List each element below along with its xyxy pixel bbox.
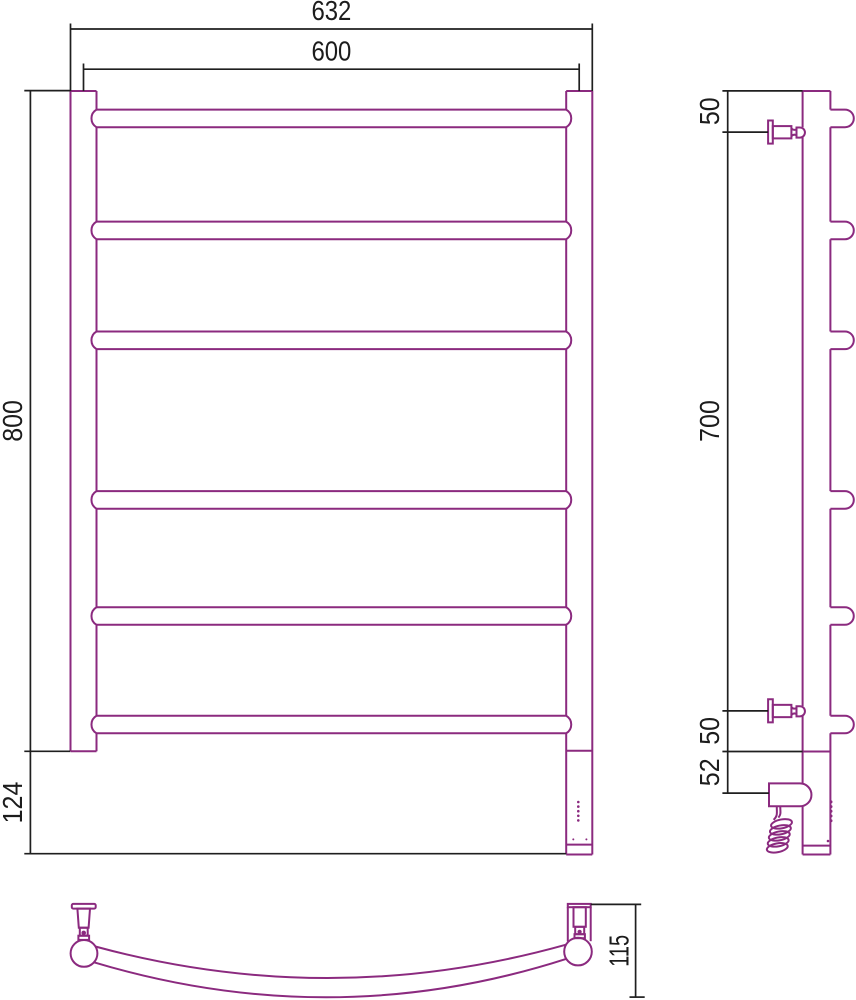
- svg-text:800: 800: [0, 400, 28, 442]
- svg-text:115: 115: [604, 935, 635, 967]
- svg-text:50: 50: [694, 97, 726, 125]
- svg-text:600: 600: [311, 37, 351, 67]
- svg-text:52: 52: [694, 758, 726, 786]
- svg-text:632: 632: [311, 0, 351, 27]
- svg-text:700: 700: [694, 400, 726, 442]
- svg-text:50: 50: [694, 717, 726, 745]
- svg-text:124: 124: [0, 782, 28, 824]
